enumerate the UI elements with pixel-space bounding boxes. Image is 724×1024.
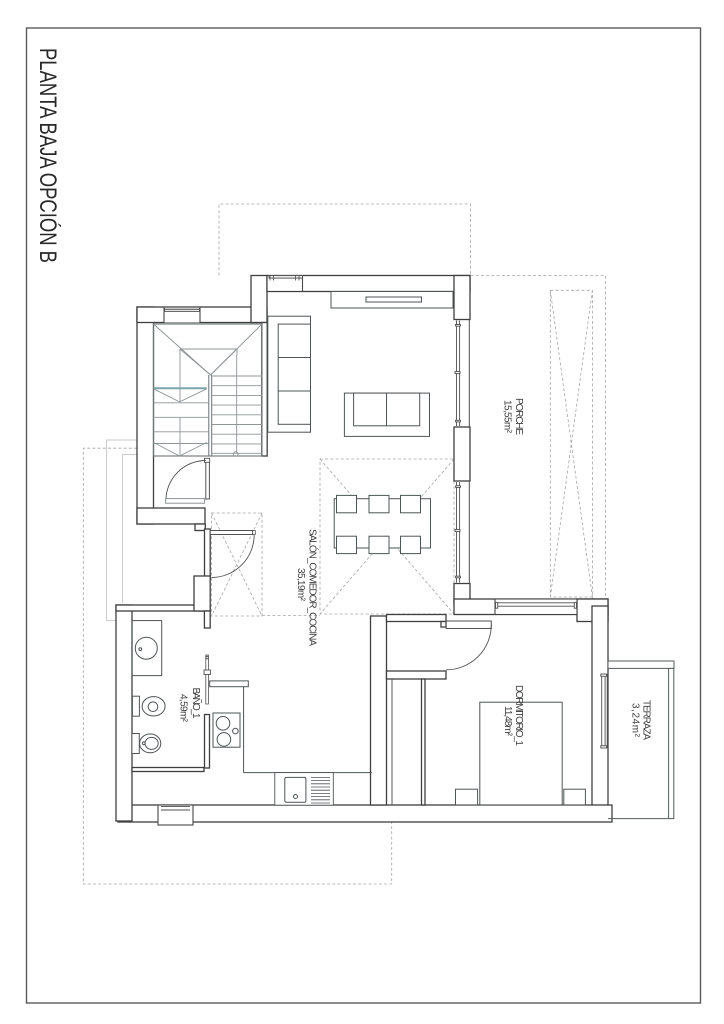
svg-text:PLANTA BAJA OPCIÓN B: PLANTA BAJA OPCIÓN B xyxy=(34,48,61,263)
svg-text:TERRAZA: TERRAZA xyxy=(640,700,651,740)
svg-text:DORMITORIO_1: DORMITORIO_1 xyxy=(513,685,524,746)
svg-text:3,24m²: 3,24m² xyxy=(629,703,640,738)
svg-text:PORCHE: PORCHE xyxy=(513,398,524,435)
svg-text:4,59m²: 4,59m² xyxy=(177,694,188,723)
svg-text:15,55m²: 15,55m² xyxy=(502,400,513,434)
svg-text:SALÓN_COMEDOR_COCINA: SALÓN_COMEDOR_COCINA xyxy=(306,529,319,646)
svg-text:11,48m²: 11,48m² xyxy=(502,706,513,737)
svg-text:35,19m²: 35,19m² xyxy=(295,568,306,602)
svg-text:BAÑO_1: BAÑO_1 xyxy=(190,688,203,719)
